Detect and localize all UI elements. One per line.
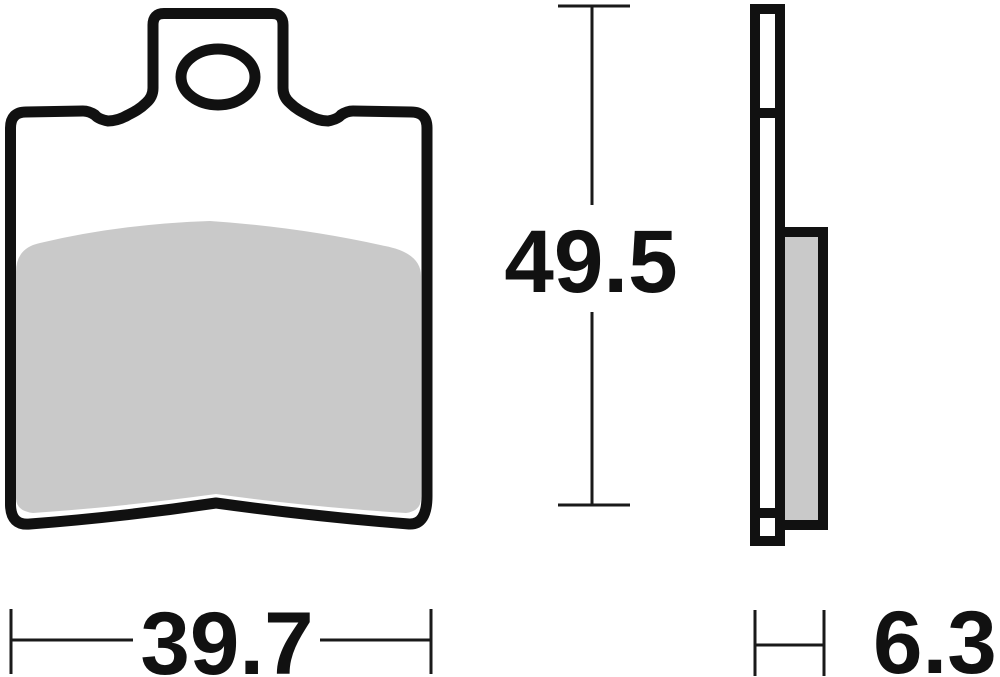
height-dim-label: 49.5 bbox=[504, 211, 677, 311]
side-view bbox=[750, 9, 823, 541]
height-dimension: 49.5 bbox=[504, 6, 677, 505]
friction-material-side bbox=[780, 232, 823, 525]
width-dim-label: 39.7 bbox=[140, 593, 313, 677]
width-dimension: 39.7 bbox=[11, 593, 431, 677]
thickness-dimension: 6.3 bbox=[755, 592, 997, 677]
thickness-dim-label: 6.3 bbox=[873, 592, 997, 677]
side-backplate bbox=[755, 9, 780, 541]
drawing-canvas: 49.5 39.7 6.3 bbox=[0, 0, 1000, 677]
front-view bbox=[11, 14, 428, 525]
brake-pad-technical-drawing: 49.5 39.7 6.3 bbox=[0, 0, 1000, 677]
mounting-hole bbox=[181, 49, 255, 105]
friction-material-front bbox=[16, 221, 421, 513]
